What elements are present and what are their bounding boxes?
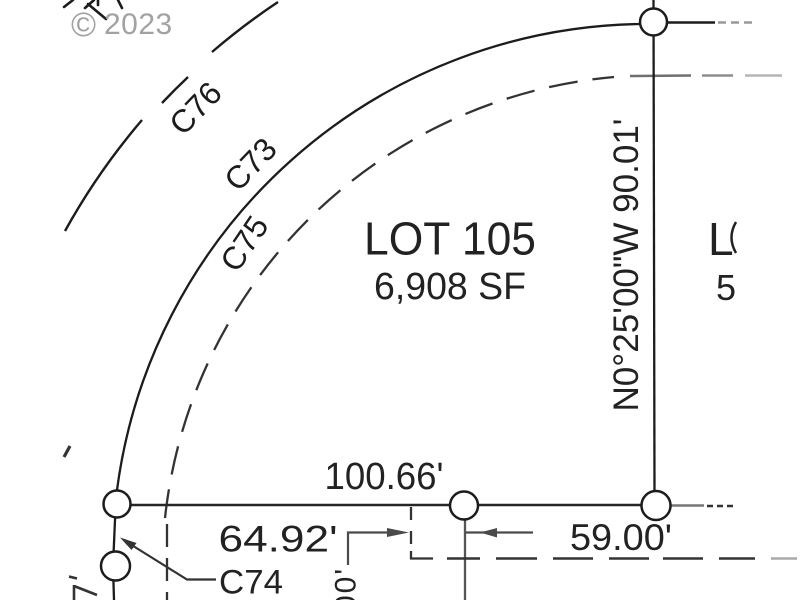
svg-text:©: © [71, 6, 96, 44]
svg-text:C74: C74 [219, 564, 283, 600]
svg-text:N0°25'00"W 90.01': N0°25'00"W 90.01' [607, 119, 646, 412]
svg-text:2023: 2023 [104, 8, 173, 41]
svg-text:LOT 105: LOT 105 [364, 213, 536, 265]
svg-text:5: 5 [716, 267, 736, 308]
svg-text:64.92': 64.92' [219, 519, 338, 560]
svg-text:59.00': 59.00' [570, 517, 672, 558]
svg-text:L: L [708, 213, 734, 265]
svg-text:100.66': 100.66' [325, 456, 444, 498]
svg-text:6,908 SF: 6,908 SF [374, 266, 526, 308]
svg-text:00': 00' [330, 567, 363, 600]
